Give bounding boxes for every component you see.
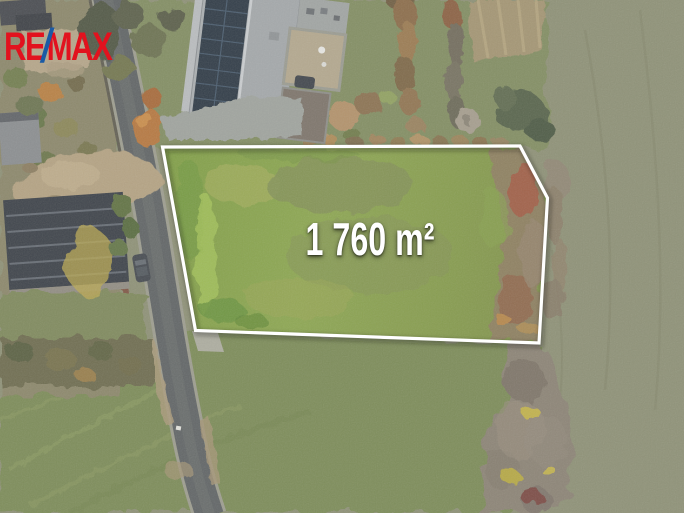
remax-logo: RE/MAX <box>4 24 111 67</box>
logo-text-max: MAX <box>47 25 112 69</box>
logo-text-re: RE <box>4 25 44 69</box>
listing-photo: RE/MAX 1 760 m² <box>0 0 684 513</box>
plot-area-value: 1 760 m² <box>306 216 435 262</box>
logo-slash: / <box>41 19 50 72</box>
